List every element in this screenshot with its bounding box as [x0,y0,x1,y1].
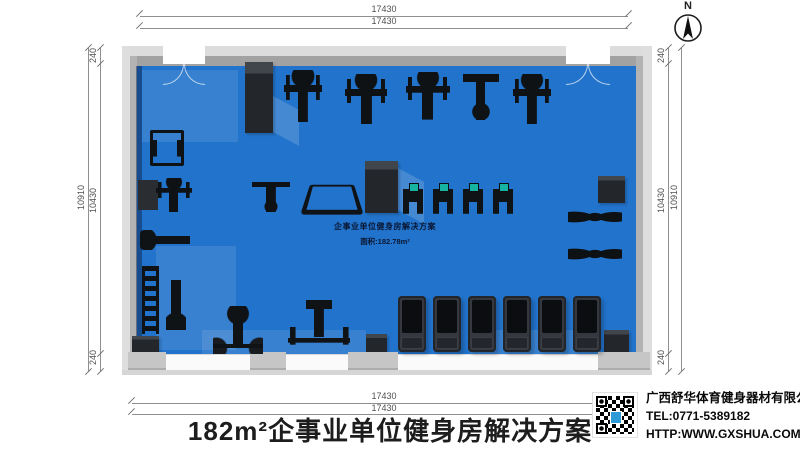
treadmill [433,296,461,352]
company-phone: TEL:0771-5389182 [646,407,796,425]
qr-finder [596,396,607,407]
stepper [433,183,453,214]
door-top-right [566,46,610,64]
window-pier [250,352,286,370]
floor-plan: 企事业单位健身房解决方案 面积:182.78m² [0,0,800,450]
spin-bike [568,240,622,268]
equipment-box [138,180,158,210]
strength-machine [156,178,192,212]
column [245,62,273,133]
company-name: 广西舒华体育健身器材有限公司 [646,390,796,407]
dip-station [300,185,363,215]
strength-machine [406,72,450,120]
company-info: 广西舒华体育健身器材有限公司 TEL:0771-5389182 HTTP:WWW… [592,390,797,448]
treadmill [503,296,531,352]
ab-bench [252,182,290,212]
window-pier [598,352,650,370]
spin-bike [568,203,622,231]
treadmill [538,296,566,352]
qr-code [592,392,638,438]
strength-machine [284,70,322,122]
column [365,161,398,213]
window-pier [348,352,398,370]
flat-bench [140,230,190,250]
treadmill [468,296,496,352]
treadmill [573,296,601,352]
treadmill [398,296,426,352]
barbell-rack [288,300,350,352]
incline-bench [166,280,186,330]
page-title: 182m²企事业单位健身房解决方案 [120,411,660,448]
qr-finder [623,396,634,407]
company-website: HTTP:WWW.GXSHUA.COM [646,425,796,443]
company-text: 广西舒华体育健身器材有限公司 TEL:0771-5389182 HTTP:WWW… [646,390,796,443]
strength-machine [513,74,551,124]
qr-finder [596,423,607,434]
squat-rack [150,130,184,166]
floor-caption: 企事业单位健身房解决方案 面积:182.78m² [295,221,475,247]
stepper [403,183,423,214]
door-top-left [163,46,205,64]
dumbbell-rack [142,266,159,334]
qr-logo [610,411,622,424]
column [598,176,625,203]
floor-caption-line2: 面积:182.78m² [295,236,475,247]
window-pier [128,352,166,370]
floor-caption-line1: 企事业单位健身房解决方案 [295,221,475,232]
stepper [493,183,513,214]
bench-press [213,306,263,354]
gym-floorplan-canvas: 17430 17430 17430 17430 10910 240 10430 … [0,0,800,450]
stepper [463,183,483,214]
strength-machine [345,74,387,124]
adjustable-bench [463,74,499,120]
